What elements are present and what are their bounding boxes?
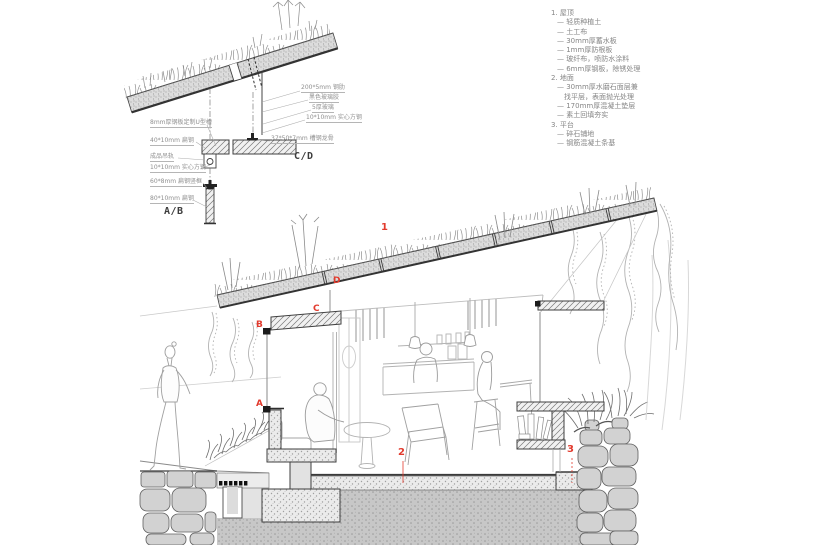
walking-figure: [150, 342, 190, 470]
marker-detail-b: B: [256, 320, 263, 330]
marker-detail-d: D: [333, 276, 340, 286]
background-reeds: [646, 240, 689, 430]
shrub-row: [206, 412, 273, 460]
detail-label-steel-rib: 200*5mm 钢肋: [301, 84, 345, 93]
legend-line: — 钢筋混凝土条基: [551, 139, 701, 148]
detail-label-square-steel-left: 10*10mm 实心方钢: [150, 164, 206, 173]
marker-roof-1: 1: [381, 222, 388, 233]
detail-caption-cd: C/D: [294, 151, 314, 162]
detail-label-track: 成品吊轨: [150, 153, 174, 162]
hanging-vines-left: [209, 312, 258, 382]
detail-label-flat-steel-80: 80*10mm 扁钢: [150, 195, 194, 204]
detail-label-flat-steel-60: 60*8mm 扁钢竖框: [150, 178, 202, 187]
legend-line: — 素土回填夯实: [551, 111, 701, 120]
left-wall-assembly: [263, 290, 341, 413]
legend-line: — 30mm厚蓄水板: [551, 37, 701, 46]
green-roof: [214, 182, 657, 308]
marker-floor-2: 2: [398, 447, 405, 458]
legend-line: — 土工布: [551, 28, 701, 37]
detail-label-channel-keel: 37*50*7mm 槽钢龙骨: [271, 135, 334, 144]
marker-platform-3: 3: [567, 444, 574, 455]
legend-notes: 1. 屋顶 — 轻质种植土 — 土工布 — 30mm厚蓄水板 — 1mm厚防根板…: [551, 9, 701, 148]
detail-label-flat-steel-40: 40*10mm 扁钢: [150, 137, 194, 146]
stone-wall-right: [577, 418, 638, 545]
legend-line: — 170mm厚混凝土垫层: [551, 102, 701, 111]
legend-line: 2. 地面: [551, 74, 701, 83]
legend-line: 1. 屋顶: [551, 9, 701, 18]
detail-label-u-channel: 8mm厚钢板定制U型槽: [150, 119, 212, 128]
detail-label-square-steel-right: 10*10mm 实心方钢: [306, 114, 362, 123]
legend-line: 3. 平台: [551, 121, 701, 130]
detail-label-black-silicone: 黑色玻璃胶: [309, 94, 339, 103]
legend-line: — 玻纤布，喷防水涂料: [551, 55, 701, 64]
legend-line: — 30mm厚水磨石面层兼: [551, 83, 701, 92]
ground-and-foundation: [217, 462, 592, 545]
marker-detail-c: C: [313, 304, 320, 314]
legend-line: — 碎石铺地: [551, 130, 701, 139]
hanging-vines-right: [568, 202, 677, 392]
architectural-section-sheet: 1. 屋顶 — 轻质种植土 — 土工布 — 30mm厚蓄水板 — 1mm厚防根板…: [0, 0, 818, 545]
stone-wall-left: [140, 471, 217, 545]
detail-caption-ab: A/B: [164, 206, 184, 217]
detail-callouts-art: [124, 0, 338, 224]
detail-label-glass: 5厚玻璃: [312, 104, 334, 113]
marker-detail-a: A: [256, 399, 263, 409]
legend-line: — 轻质种植土: [551, 18, 701, 27]
legend-line: — 6mm厚钢板，除锈处理: [551, 65, 701, 74]
legend-line: 找平层，表面抛光处理: [551, 93, 701, 102]
